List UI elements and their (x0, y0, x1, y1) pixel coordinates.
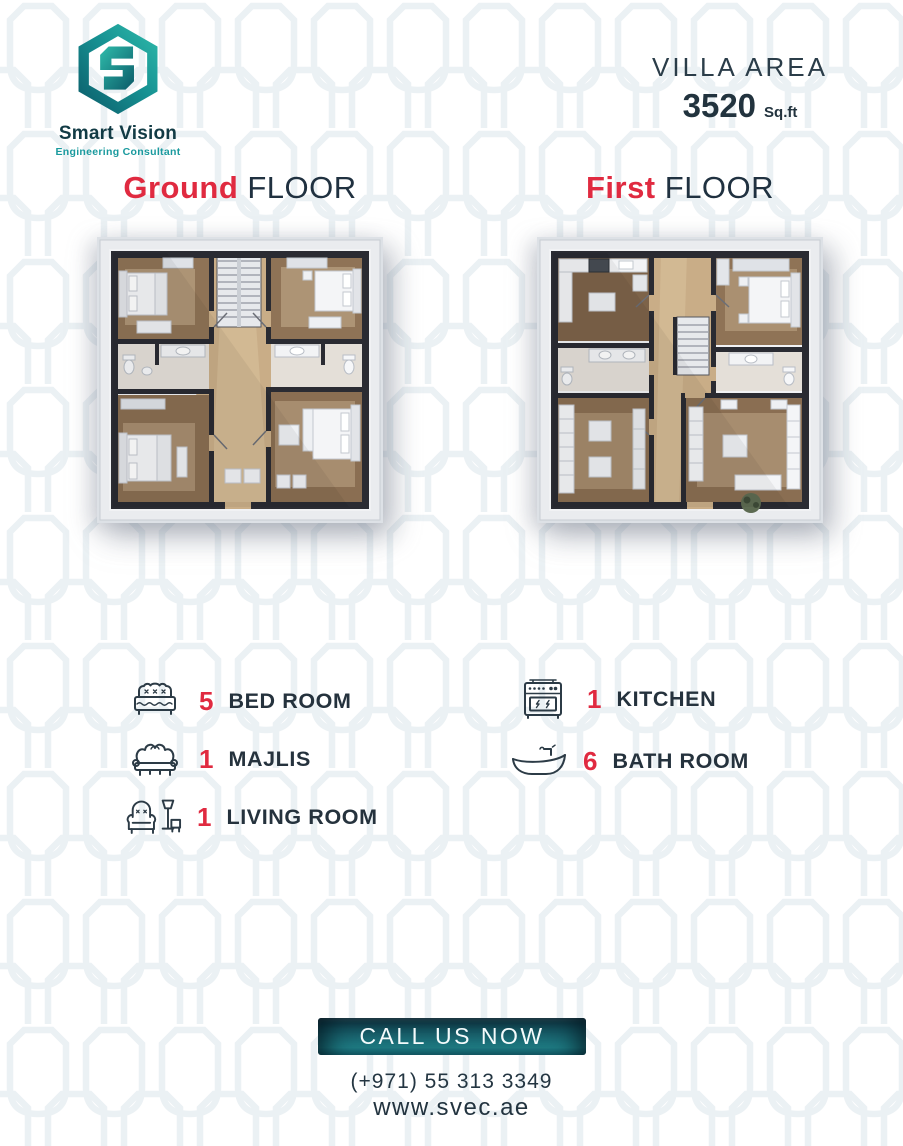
first-floor-title-highlight: First (586, 170, 656, 205)
first-floor-title-rest: FLOOR (656, 170, 774, 205)
brand-tagline: Engineering Consultant (38, 146, 198, 158)
villa-area-label: VILLA AREA (640, 52, 840, 83)
website-link[interactable]: www.svec.ae (0, 1094, 903, 1122)
bed-icon (126, 680, 184, 722)
feature-bathrooms-label: BATH ROOM (612, 749, 748, 774)
ground-floor-title-highlight: Ground (123, 170, 238, 205)
feature-kitchen: 1 KITCHEN (514, 676, 716, 722)
feature-kitchen-count: 1 (587, 684, 601, 715)
phone-number: (+971) 55 313 3349 (0, 1070, 903, 1094)
villa-area-unit: Sq.ft (764, 104, 797, 121)
villa-area-block: VILLA AREA 3520 Sq.ft (640, 52, 840, 125)
ground-floor-title: Ground FLOOR (95, 170, 385, 206)
first-floor-title: First FLOOR (535, 170, 825, 206)
feature-bathrooms-count: 6 (583, 746, 597, 777)
villa-area-value: 3520 (683, 87, 756, 125)
armchair-icon (124, 795, 182, 839)
sofa-icon (126, 738, 184, 780)
feature-living-room: 1 LIVING ROOM (124, 794, 378, 840)
ground-floor-title-rest: FLOOR (238, 170, 356, 205)
hexagon-s-logo-icon (68, 22, 168, 116)
call-us-now-button[interactable]: CALL US NOW (318, 1018, 586, 1055)
stove-icon (514, 676, 572, 722)
feature-kitchen-label: KITCHEN (616, 687, 716, 712)
brand-block: Smart Vision Engineering Consultant (38, 22, 198, 158)
first-floor-plan (537, 237, 823, 523)
ground-floor-plan (97, 237, 383, 523)
brand-name: Smart Vision (38, 123, 198, 145)
feature-majlis: 1 MAJLIS (126, 736, 311, 782)
feature-bathrooms: 6 BATH ROOM (510, 738, 749, 784)
feature-living-label: LIVING ROOM (226, 805, 377, 830)
feature-bedrooms-count: 5 (199, 686, 213, 717)
feature-bedrooms-label: BED ROOM (228, 689, 351, 714)
bathtub-icon (510, 742, 568, 780)
villa-flyer: Smart Vision Engineering Consultant VILL… (0, 0, 903, 1146)
feature-bedrooms: 5 BED ROOM (126, 678, 352, 724)
feature-majlis-count: 1 (199, 744, 213, 775)
feature-living-count: 1 (197, 802, 211, 833)
feature-majlis-label: MAJLIS (228, 747, 310, 772)
